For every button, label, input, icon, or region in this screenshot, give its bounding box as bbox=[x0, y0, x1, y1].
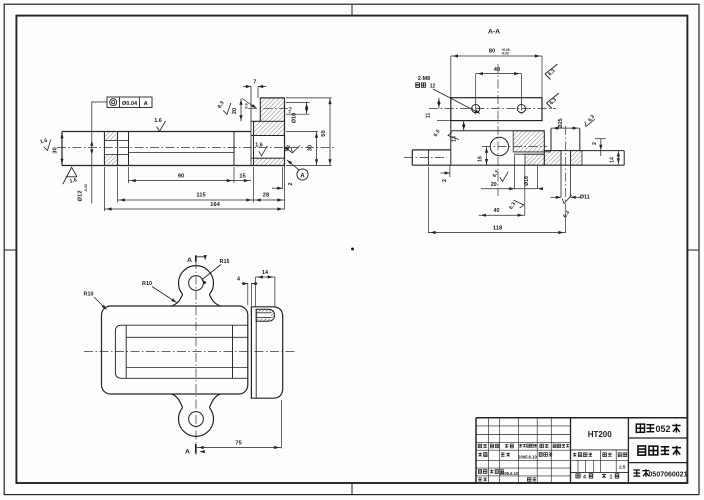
svg-text:R15: R15 bbox=[220, 259, 230, 265]
svg-text:50: 50 bbox=[321, 130, 327, 136]
svg-text:40: 40 bbox=[494, 208, 500, 214]
svg-text:75: 75 bbox=[235, 441, 242, 447]
svg-text:2: 2 bbox=[442, 179, 448, 182]
svg-text:2: 2 bbox=[288, 183, 294, 186]
svg-text:2: 2 bbox=[592, 142, 598, 145]
svg-text:4: 4 bbox=[583, 474, 586, 480]
svg-text:0507060021: 0507060021 bbox=[649, 471, 688, 478]
svg-text:2-M8: 2-M8 bbox=[418, 76, 430, 82]
svg-text:4: 4 bbox=[237, 276, 240, 282]
svg-text:R10: R10 bbox=[142, 281, 152, 287]
svg-text:Ø10: Ø10 bbox=[291, 113, 297, 124]
svg-text:-0.03: -0.03 bbox=[502, 52, 509, 56]
svg-text:11: 11 bbox=[426, 113, 432, 119]
svg-text:Ø12: Ø12 bbox=[78, 191, 84, 202]
svg-text:Ø0.04: Ø0.04 bbox=[122, 101, 138, 107]
svg-text:HT200: HT200 bbox=[588, 430, 613, 439]
svg-text:2005.6.10: 2005.6.10 bbox=[518, 454, 537, 459]
svg-text:Ø11: Ø11 bbox=[580, 195, 590, 201]
svg-text:1: 1 bbox=[610, 474, 613, 480]
svg-text:A: A bbox=[187, 257, 192, 264]
svg-text:14: 14 bbox=[610, 157, 616, 163]
svg-text:16: 16 bbox=[478, 156, 484, 162]
svg-text:1.6: 1.6 bbox=[255, 143, 263, 149]
svg-text:7: 7 bbox=[253, 80, 256, 86]
svg-text:30: 30 bbox=[308, 145, 314, 151]
svg-text:12: 12 bbox=[430, 83, 436, 89]
svg-text:1.6: 1.6 bbox=[154, 118, 162, 124]
svg-text:30: 30 bbox=[53, 147, 59, 153]
svg-text:15: 15 bbox=[239, 174, 246, 180]
svg-text:-0.02: -0.02 bbox=[84, 184, 88, 192]
svg-text:A-A: A-A bbox=[488, 29, 500, 36]
svg-text:2.5: 2.5 bbox=[619, 465, 626, 470]
svg-text:40: 40 bbox=[494, 67, 500, 73]
svg-text:0.9: 0.9 bbox=[245, 103, 249, 108]
svg-text:115: 115 bbox=[196, 193, 206, 199]
svg-text:052: 052 bbox=[655, 424, 670, 434]
svg-text:28: 28 bbox=[263, 193, 270, 199]
svg-text:+0.1: +0.1 bbox=[288, 107, 292, 114]
svg-text:14: 14 bbox=[262, 270, 268, 276]
svg-text:Ø25: Ø25 bbox=[558, 118, 564, 128]
svg-text:80: 80 bbox=[489, 49, 495, 55]
svg-text:A: A bbox=[300, 172, 305, 179]
svg-text:90: 90 bbox=[178, 174, 184, 180]
svg-text:20: 20 bbox=[232, 108, 238, 114]
svg-text:R10: R10 bbox=[84, 292, 94, 298]
svg-text:20: 20 bbox=[491, 182, 497, 188]
svg-text:A: A bbox=[185, 449, 190, 456]
svg-text:2005.6.10: 2005.6.10 bbox=[500, 471, 519, 476]
svg-text:164: 164 bbox=[210, 202, 220, 208]
svg-text:118: 118 bbox=[493, 226, 503, 232]
